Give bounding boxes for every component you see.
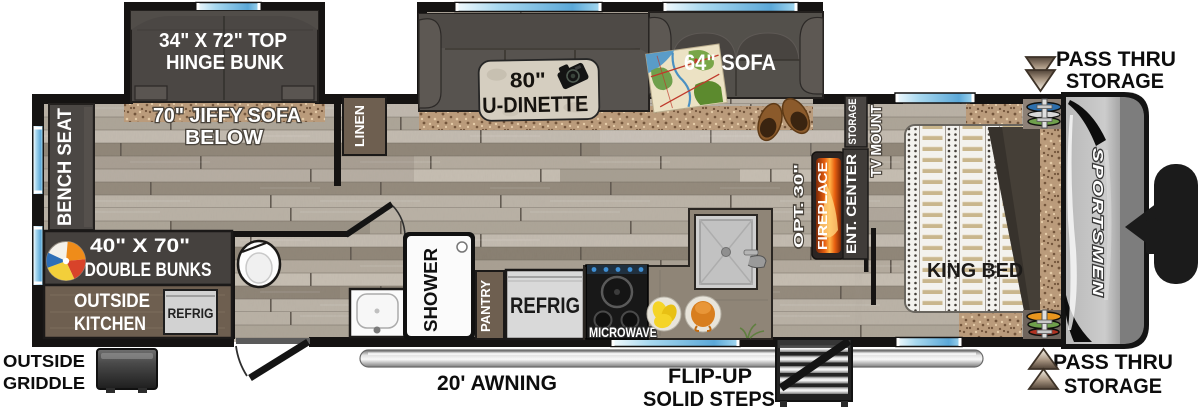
- svg-text:PANTRY: PANTRY: [479, 279, 493, 332]
- svg-text:LINEN: LINEN: [352, 105, 367, 147]
- svg-text:REFRIG: REFRIG: [168, 306, 214, 321]
- svg-text:STORAGE: STORAGE: [847, 99, 859, 145]
- svg-text:40" X 70": 40" X 70": [90, 235, 190, 257]
- svg-text:OUTSIDE: OUTSIDE: [74, 290, 150, 312]
- svg-text:FIREPLACE: FIREPLACE: [815, 162, 830, 250]
- svg-text:FLIP-UP: FLIP-UP: [668, 365, 752, 388]
- svg-text:SHOWER: SHOWER: [421, 248, 441, 332]
- svg-text:OUTSIDE: OUTSIDE: [3, 351, 85, 371]
- svg-text:GRIDDLE: GRIDDLE: [3, 373, 85, 393]
- svg-text:HINGE BUNK: HINGE BUNK: [166, 51, 284, 74]
- svg-text:OPT. 30": OPT. 30": [791, 164, 806, 248]
- svg-text:STORAGE: STORAGE: [1066, 69, 1164, 93]
- svg-text:DOUBLE BUNKS: DOUBLE BUNKS: [85, 259, 212, 281]
- svg-text:SPORTSMEN: SPORTSMEN: [1089, 148, 1106, 298]
- svg-text:PASS THRU: PASS THRU: [1056, 47, 1176, 71]
- svg-text:REFRIG: REFRIG: [510, 293, 580, 318]
- svg-text:64" SOFA: 64" SOFA: [684, 50, 776, 75]
- svg-text:KITCHEN: KITCHEN: [74, 313, 146, 335]
- svg-text:BENCH SEAT: BENCH SEAT: [55, 108, 76, 226]
- svg-text:BELOW: BELOW: [185, 126, 264, 149]
- svg-text:ENT. CENTER: ENT. CENTER: [844, 154, 859, 254]
- svg-text:STORAGE: STORAGE: [1064, 374, 1162, 398]
- svg-text:TV MOUNT: TV MOUNT: [868, 105, 885, 177]
- svg-text:U-DINETTE: U-DINETTE: [482, 91, 588, 118]
- svg-text:20' AWNING: 20' AWNING: [437, 372, 557, 395]
- svg-text:70" JIFFY SOFA: 70" JIFFY SOFA: [153, 104, 301, 127]
- svg-text:SOLID STEPS: SOLID STEPS: [643, 388, 775, 411]
- svg-text:MICROWAVE: MICROWAVE: [589, 324, 657, 340]
- svg-text:PASS THRU: PASS THRU: [1053, 350, 1173, 374]
- svg-text:34" X 72" TOP: 34" X 72" TOP: [159, 29, 287, 52]
- svg-text:80": 80": [510, 69, 546, 93]
- svg-text:KING BED: KING BED: [927, 259, 1023, 282]
